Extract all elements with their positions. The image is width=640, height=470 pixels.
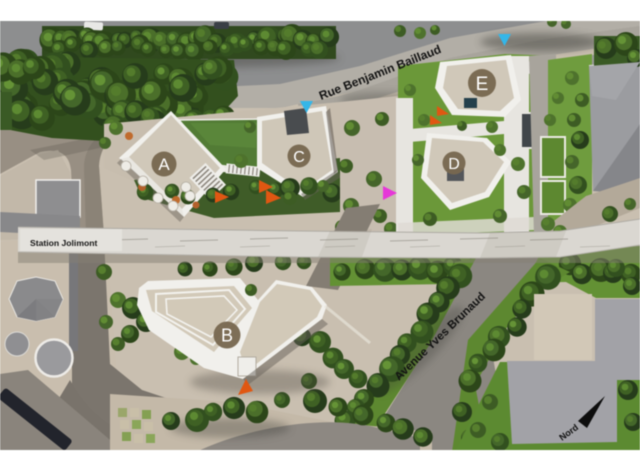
- svg-text:C: C: [293, 149, 305, 166]
- svg-text:B: B: [221, 325, 233, 345]
- svg-text:E: E: [476, 74, 489, 95]
- svg-text:Station Jolimont: Station Jolimont: [30, 238, 97, 248]
- svg-text:A: A: [158, 155, 170, 174]
- svg-text:D: D: [448, 156, 460, 173]
